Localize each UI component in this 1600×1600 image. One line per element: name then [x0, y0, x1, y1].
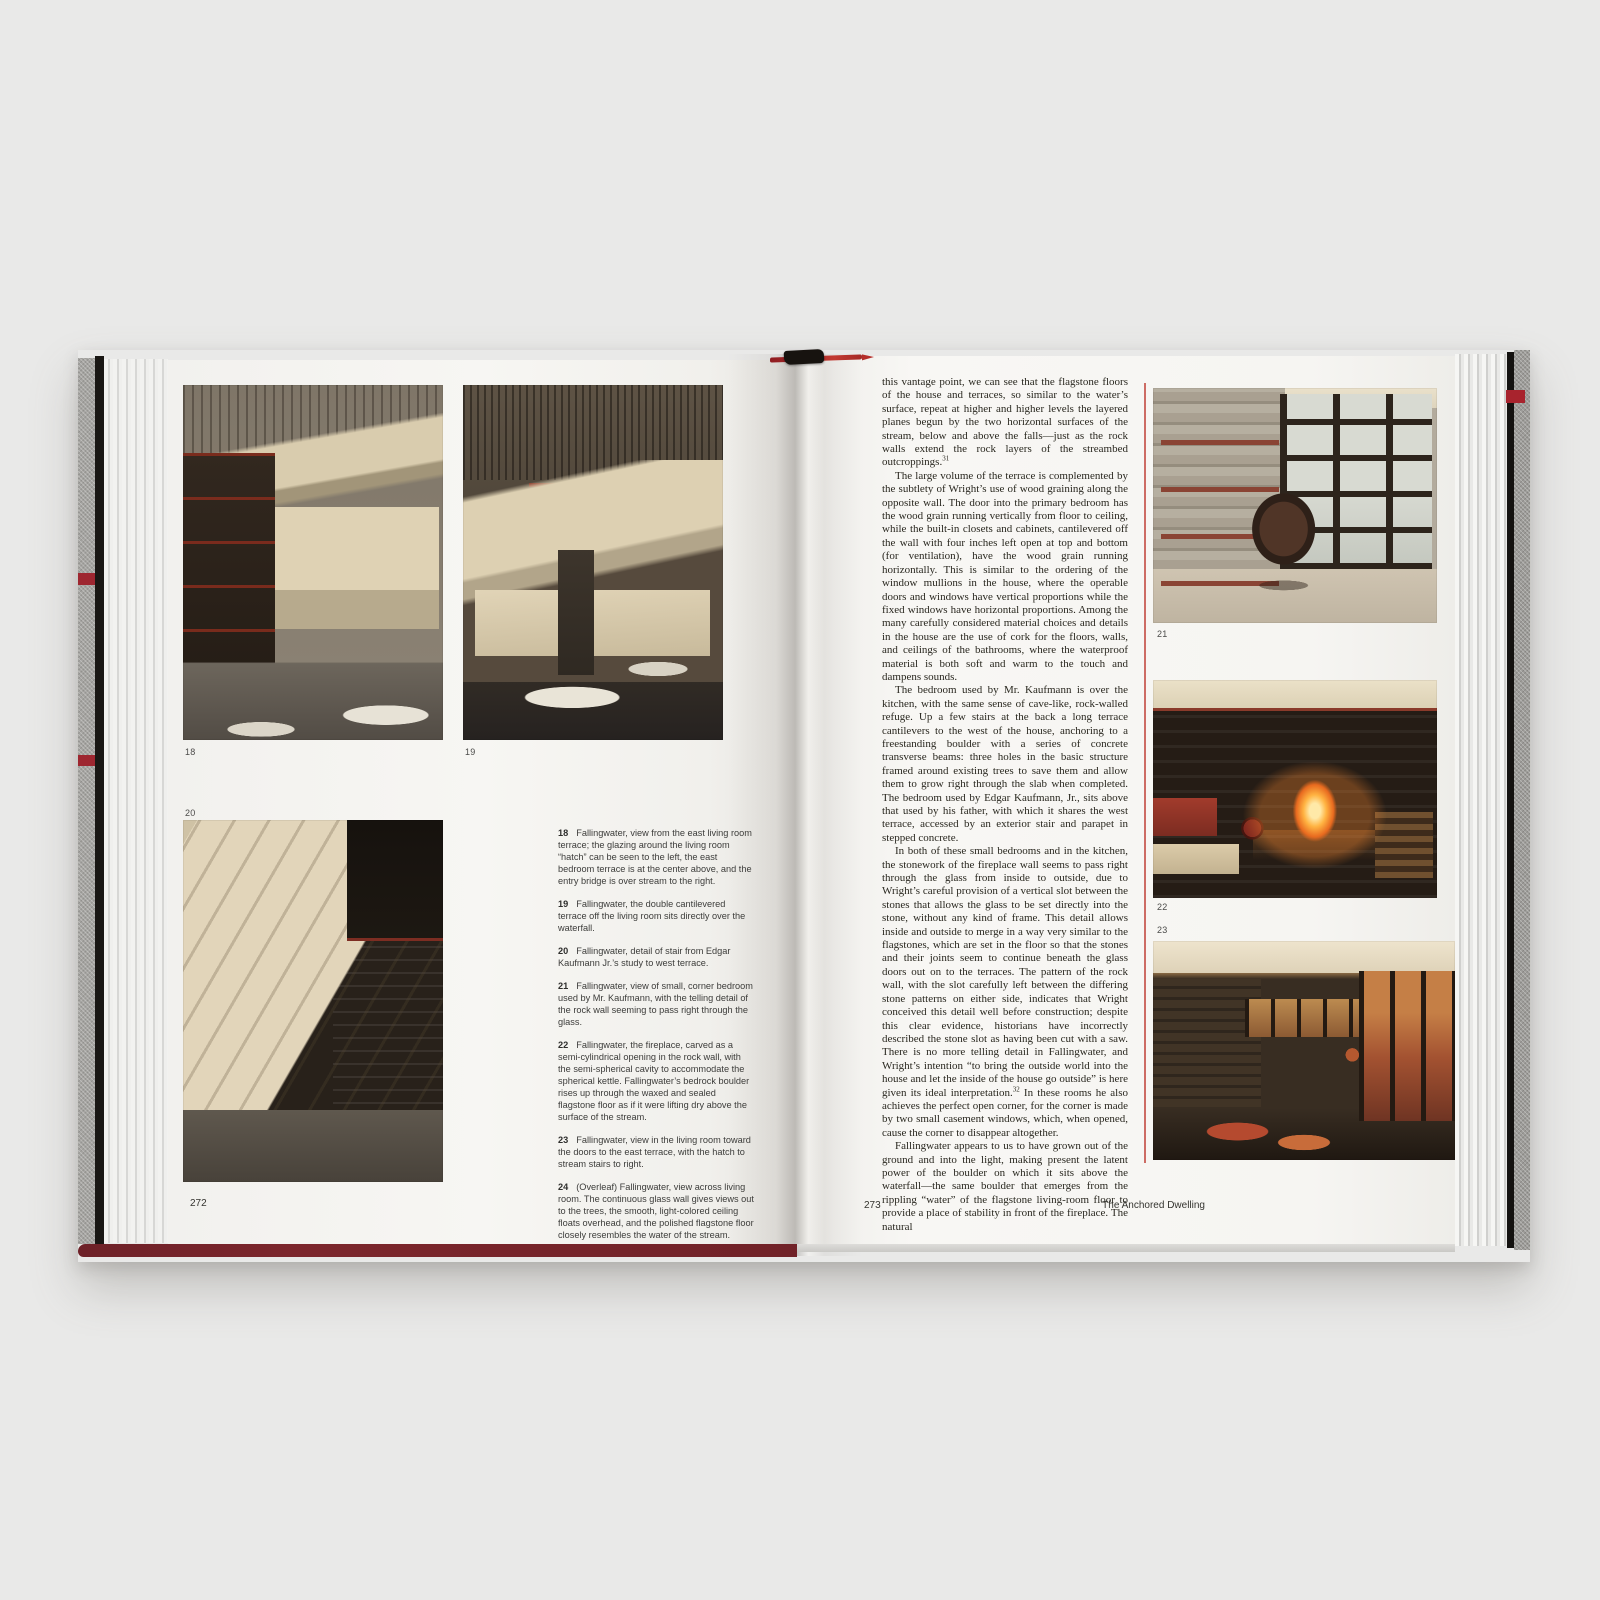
paragraph: The bedroom used by Mr. Kaufmann is over… — [882, 684, 1128, 845]
open-book: 18 19 20 18Fallingwater, view from the e… — [78, 350, 1530, 1262]
figure-23-photo — [1153, 941, 1455, 1160]
caption-number: 23 — [558, 1135, 568, 1145]
body-text-column: this vantage point, we can see that the … — [882, 376, 1128, 1234]
paragraph: The large volume of the terrace is compl… — [882, 470, 1128, 685]
caption-24: 24(Overleaf) Fallingwater, view across l… — [558, 1181, 755, 1241]
caption-number: 19 — [558, 899, 568, 909]
caption-text: Fallingwater, the fireplace, carved as a… — [558, 1040, 749, 1122]
figure-19-label: 19 — [465, 747, 475, 757]
caption-18: 18Fallingwater, view from the east livin… — [558, 827, 755, 887]
caption-text: Fallingwater, view from the east living … — [558, 828, 752, 886]
caption-19: 19Fallingwater, the double cantilevered … — [558, 898, 755, 934]
figure-19-photo — [463, 385, 723, 740]
caption-23: 23Fallingwater, view in the living room … — [558, 1134, 755, 1170]
right-cover-black-stripe — [1507, 352, 1514, 1248]
page-number-273: 273 — [864, 1200, 881, 1211]
figure-20-photo — [183, 820, 443, 1182]
footnote-marker: 32 — [1013, 1085, 1020, 1093]
right-page-fore-edge — [1455, 354, 1507, 1246]
photo-backdrop: 18 19 20 18Fallingwater, view from the e… — [0, 0, 1600, 1600]
left-cover-edge — [78, 358, 95, 1244]
caption-number: 20 — [558, 946, 568, 956]
page-edge-red-mark — [78, 755, 95, 766]
figure-20-label: 20 — [185, 808, 195, 818]
figure-22-photo — [1153, 680, 1437, 898]
caption-text: Fallingwater, view of small, corner bedr… — [558, 981, 753, 1027]
caption-number: 24 — [558, 1182, 568, 1192]
caption-number: 21 — [558, 981, 568, 991]
caption-number: 22 — [558, 1040, 568, 1050]
right-cover-edge — [1514, 350, 1530, 1250]
bottom-page-edge — [797, 1244, 1455, 1252]
caption-text: (Overleaf) Fallingwater, view across liv… — [558, 1182, 754, 1240]
caption-text: Fallingwater, the double cantilevered te… — [558, 899, 745, 933]
column-red-rule — [1144, 383, 1146, 1163]
caption-text: Fallingwater, view in the living room to… — [558, 1135, 751, 1169]
figure-23-label: 23 — [1157, 925, 1167, 935]
page-edge-red-mark — [78, 573, 95, 585]
caption-21: 21Fallingwater, view of small, corner be… — [558, 980, 755, 1028]
caption-text: Fallingwater, detail of stair from Edgar… — [558, 946, 730, 968]
page-edge-red-mark — [1506, 390, 1525, 403]
footnote-marker: 31 — [942, 455, 949, 463]
paragraph: In both of these small bedrooms and in t… — [882, 845, 1128, 1140]
figure-21-photo — [1153, 388, 1437, 623]
paragraph: Fallingwater appears to us to have grown… — [882, 1140, 1128, 1234]
bookmark-ribbon — [784, 349, 825, 365]
caption-22: 22Fallingwater, the fireplace, carved as… — [558, 1039, 755, 1123]
left-cover-black-stripe — [95, 356, 104, 1246]
paragraph: this vantage point, we can see that the … — [882, 376, 1128, 470]
paragraph-text: In both of these small bedrooms and in t… — [882, 845, 1128, 1098]
figure-18-label: 18 — [185, 747, 195, 757]
figure-18-photo — [183, 385, 443, 740]
caption-number: 18 — [558, 828, 568, 838]
page-number-272: 272 — [190, 1198, 207, 1209]
bottom-cover-edge — [78, 1244, 797, 1257]
caption-column: 18Fallingwater, view from the east livin… — [558, 827, 755, 1252]
running-title: The Anchored Dwelling — [1005, 1200, 1205, 1211]
paragraph-text: this vantage point, we can see that the … — [882, 376, 1128, 468]
caption-20: 20Fallingwater, detail of stair from Edg… — [558, 945, 755, 969]
figure-21-label: 21 — [1157, 629, 1167, 639]
figure-22-label: 22 — [1157, 902, 1167, 912]
left-page-fore-edge — [104, 359, 168, 1243]
